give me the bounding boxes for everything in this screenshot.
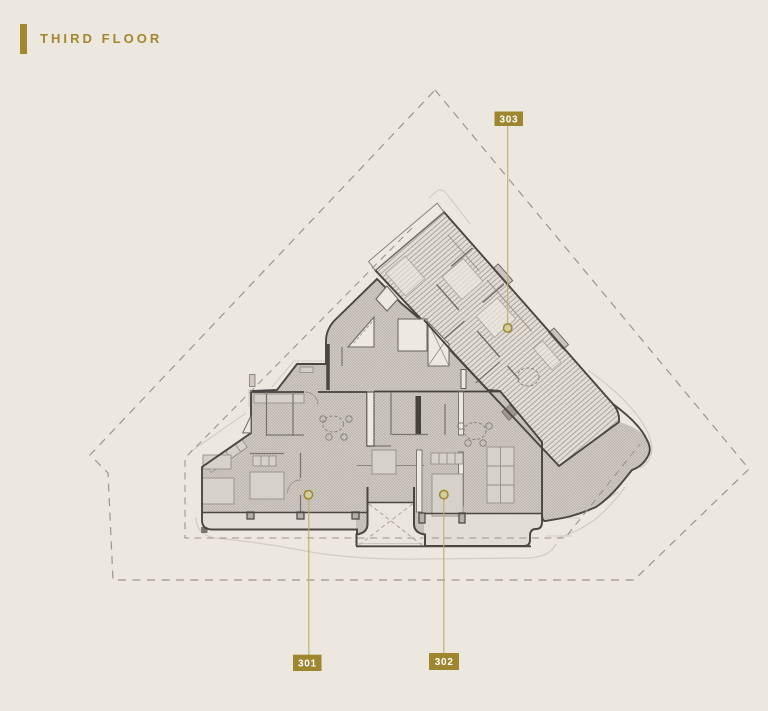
svg-text:303: 303 <box>500 115 519 126</box>
svg-text:302: 302 <box>435 657 454 668</box>
svg-text:301: 301 <box>298 659 317 670</box>
